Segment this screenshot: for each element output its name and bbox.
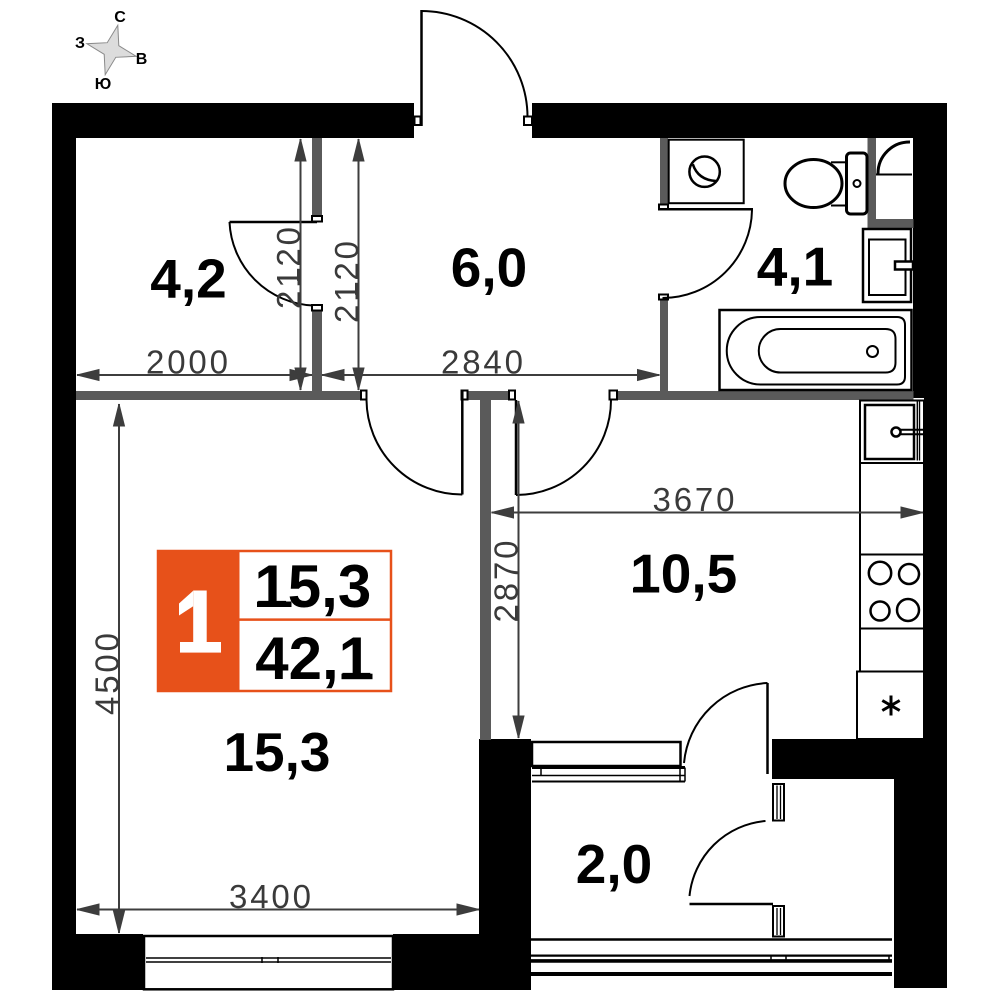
svg-text:6,0: 6,0: [451, 237, 527, 299]
svg-text:З: З: [75, 35, 85, 52]
svg-text:С: С: [114, 9, 126, 26]
svg-text:4,1: 4,1: [757, 236, 833, 298]
svg-text:4,2: 4,2: [150, 248, 226, 310]
svg-text:42,1: 42,1: [255, 625, 372, 692]
svg-text:10,5: 10,5: [630, 543, 737, 605]
svg-text:15,3: 15,3: [254, 553, 371, 620]
svg-text:Ю: Ю: [95, 76, 112, 93]
svg-text:В: В: [136, 51, 148, 68]
svg-text:2,0: 2,0: [576, 833, 652, 895]
svg-text:15,3: 15,3: [223, 721, 330, 783]
